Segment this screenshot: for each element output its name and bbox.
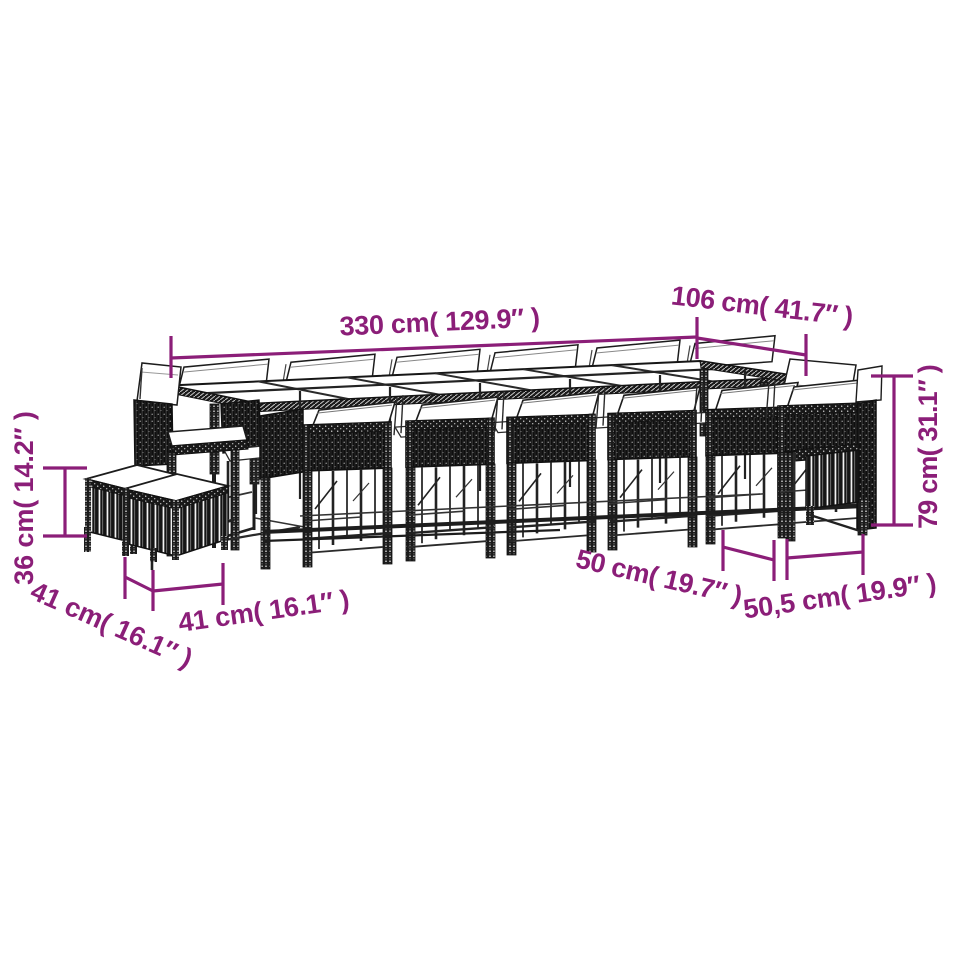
svg-text:79 cm( 31.1″ ): 79 cm( 31.1″ ) [913,365,943,529]
svg-text:36 cm( 14.2″ ): 36 cm( 14.2″ ) [9,411,39,585]
